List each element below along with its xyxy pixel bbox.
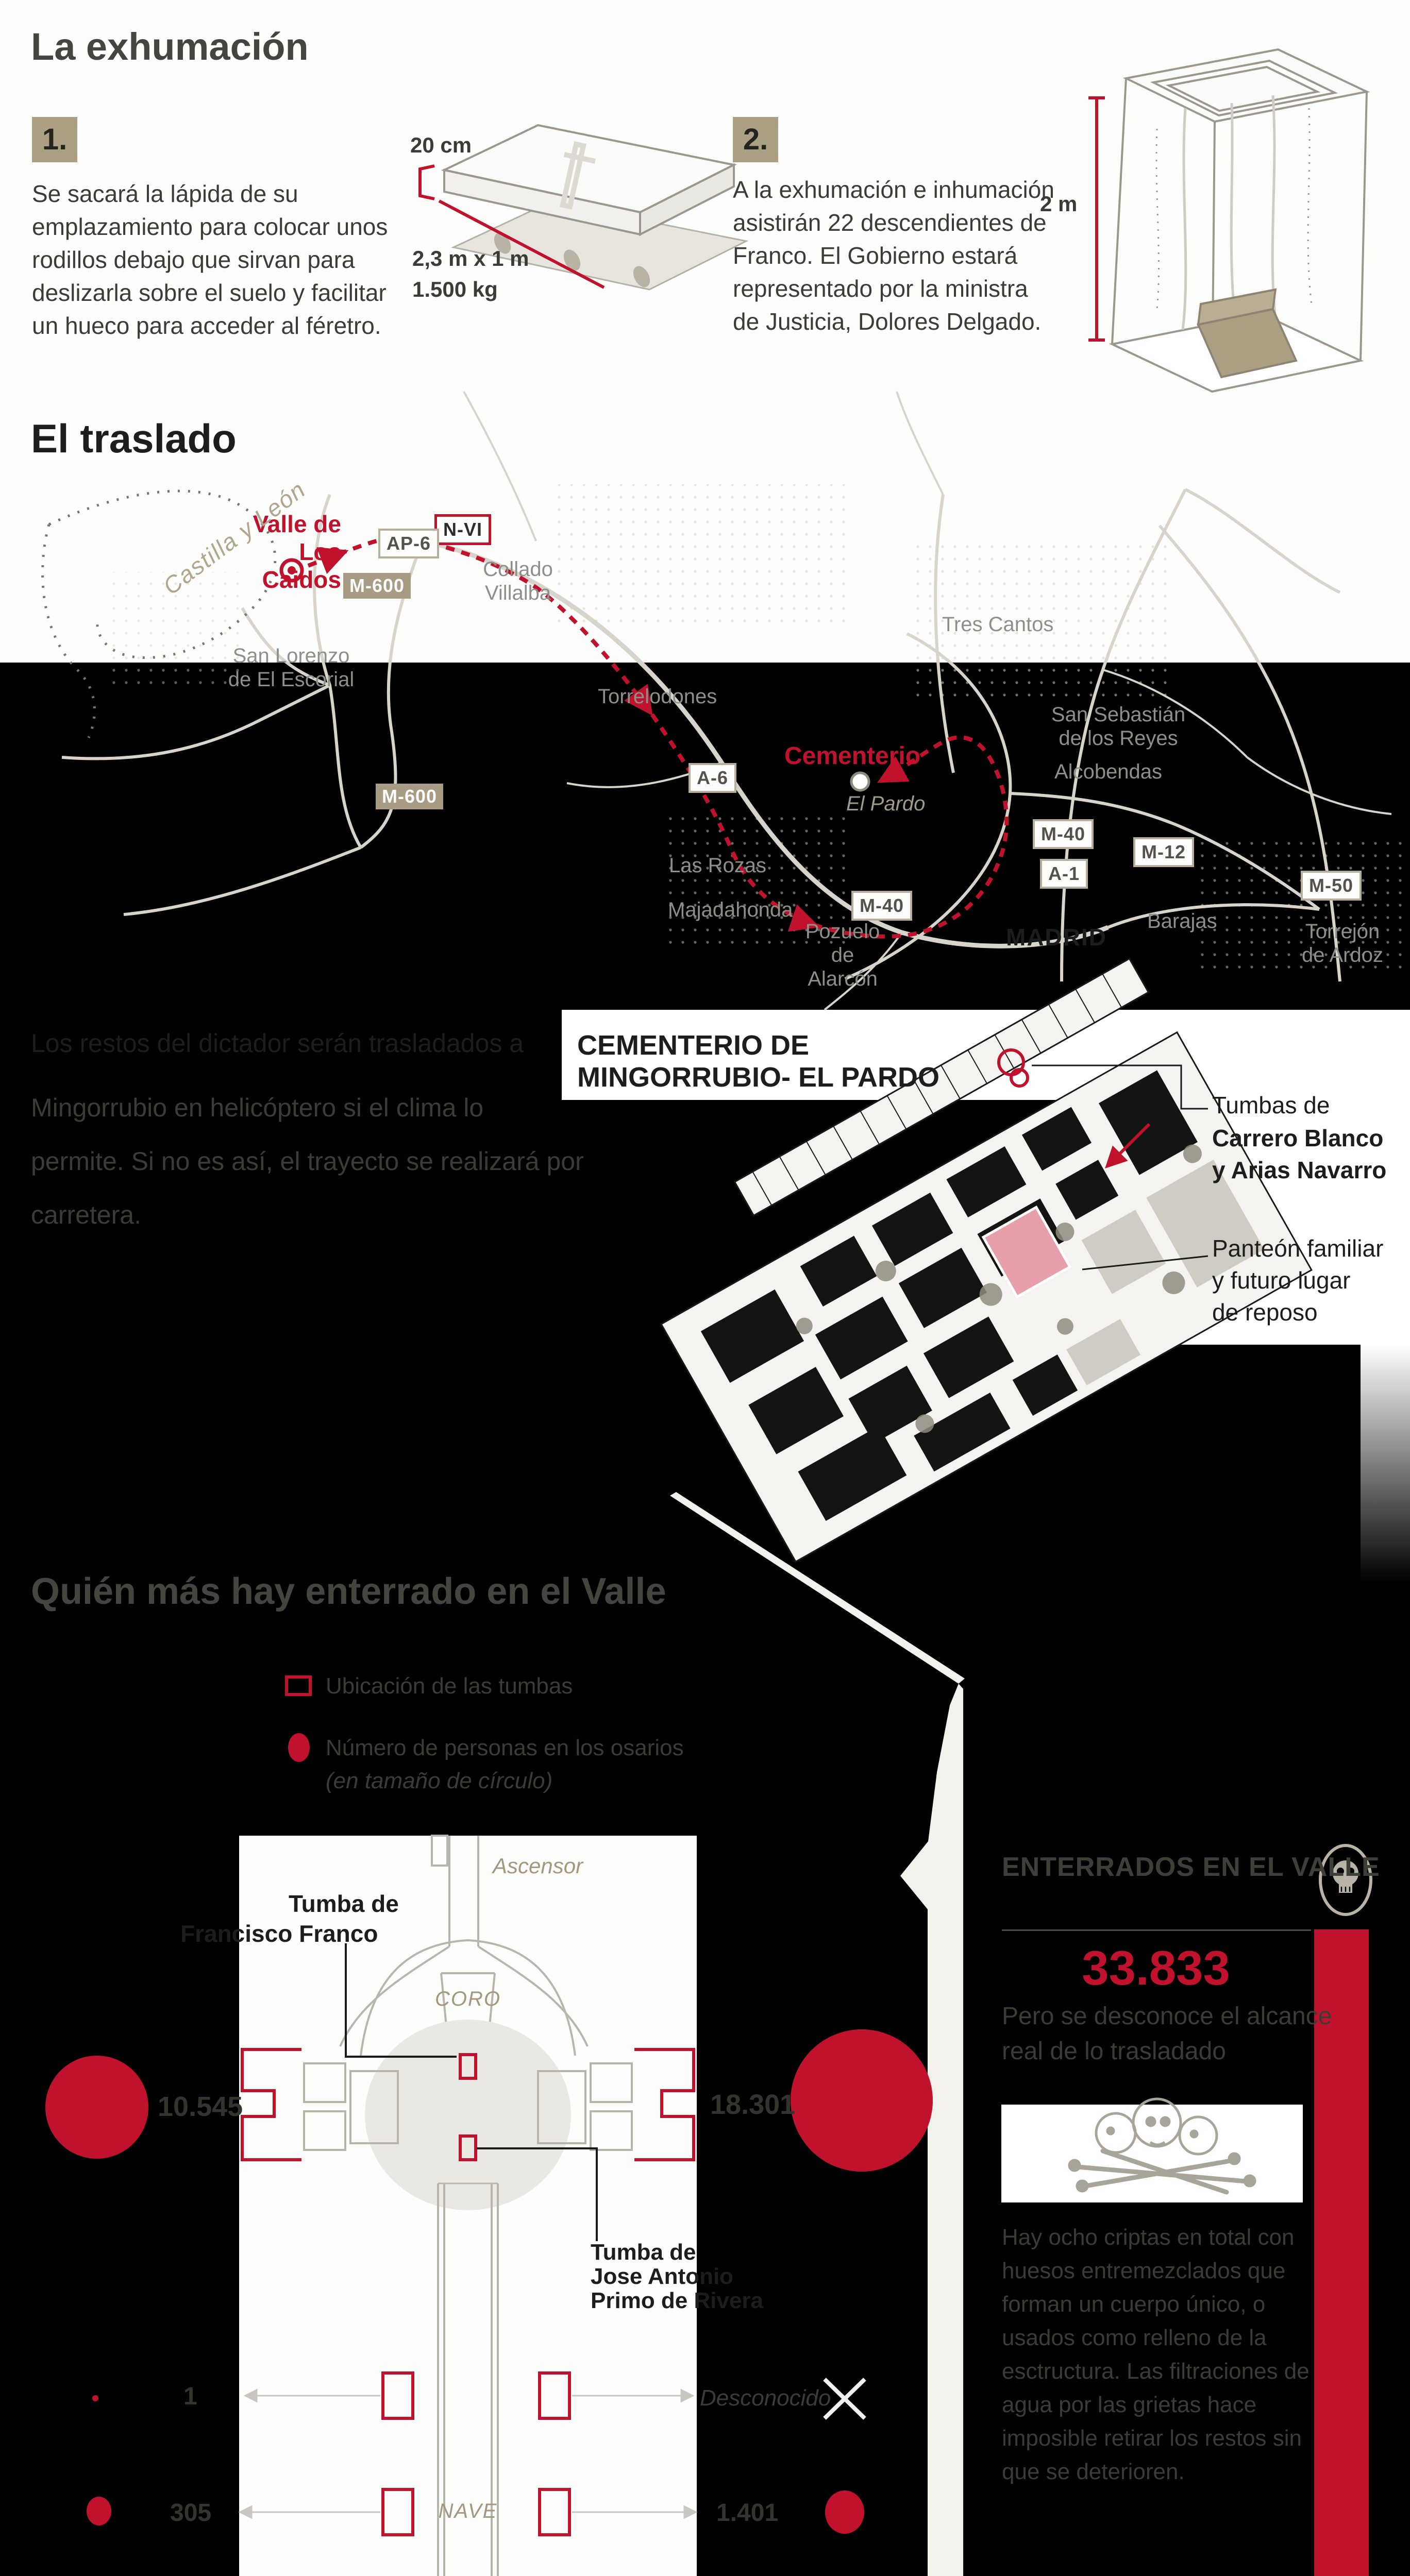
timeline-ribbon [670, 1492, 965, 2576]
town-barajas: Barajas [1147, 910, 1217, 933]
legend-ossuary-note: (en tamaño de círculo) [326, 1768, 552, 1794]
traslado-title: El traslado [31, 415, 237, 462]
vault-illustration [1088, 49, 1367, 392]
road-badge-m40-b: M-40 [851, 891, 912, 921]
franco-tomb-label-line2: Francisco Franco [180, 1920, 378, 1947]
legend-ossuary-icon [288, 1733, 310, 1762]
panel-total-note: Pero se desconoce el alcance real de lo … [1002, 1999, 1332, 2069]
ossuary-right-big-value: 18.301 [710, 2089, 795, 2121]
legend-tomb-icon [287, 1677, 310, 1694]
infographic-canvas: { "accent": "#c1122d", "s1": { "title": … [0, 0, 1410, 2576]
town-pozuelo: Pozuelo de Alarcón [791, 920, 894, 991]
section1-title: La exhumación [31, 25, 309, 69]
cemetery-tombs-label-pre: Tumbas de [1212, 1091, 1330, 1119]
plan-ascensor-label: Ascensor [493, 1854, 583, 1878]
valle-heading: Quién más hay enterrado en el Valle [31, 1570, 666, 1613]
step2-text: A la exhumación e inhumación asistirán 2… [733, 173, 1054, 338]
town-alcobendas: Alcobendas [1054, 760, 1162, 784]
franco-tomb-label-line1: Tumba de [289, 1890, 399, 1918]
crypt-row2-right-value: 1.401 [716, 2499, 778, 2527]
road-badge-a6: A-6 [689, 763, 736, 793]
panel-criptas-note: Hay ocho criptas en total con huesos ent… [1002, 2221, 1310, 2488]
lid-thickness-label: 20 cm [410, 133, 472, 158]
ossuary-left-big-value: 10.545 [158, 2091, 243, 2123]
road-badge-m600-a: M-600 [343, 573, 411, 599]
road-badge-m40-a: M-40 [1033, 819, 1094, 849]
skull-pile-illustration [1069, 2099, 1255, 2192]
town-majadahonda: Majadahonda [668, 899, 793, 922]
panel-title: ENTERRADOS EN EL VALLE [1002, 1852, 1380, 1883]
plan-nave-label: NAVE [427, 2500, 509, 2523]
lid-weight-label: 1.500 kg [412, 277, 498, 302]
step2-number: 2. [733, 117, 778, 162]
cemetery-pantheon-label: Panteón familiar y futuro lugar de repos… [1212, 1232, 1383, 1328]
road-badge-nvi: N-VI [434, 514, 491, 545]
lid-dims-label: 2,3 m x 1 m [412, 246, 529, 271]
cemetery-title: CEMENTERIO DE MINGORRUBIO- EL PARDO [577, 1029, 939, 1093]
cemetery-tombs-label-names: Carrero Blanco y Arias Navarro [1212, 1122, 1386, 1186]
town-torrelodones: Torrelodones [598, 685, 717, 708]
map-destination-label: Cementerio [784, 742, 920, 770]
crypt-arrows [241, 2396, 695, 2576]
town-collado: Collado Villalba [464, 557, 572, 605]
plan-coro-label: CORO [427, 1988, 509, 2011]
crypt-row2-left-value: 305 [170, 2499, 211, 2527]
map-madrid-label: MADRID [1006, 923, 1107, 951]
traslado-note-rest: Mingorrubio en helicóptero si el clima l… [31, 1081, 584, 1242]
town-sanlorenzo: San Lorenzo de El Escorial [216, 644, 366, 691]
step1-text: Se sacará la lápida de su emplazamiento … [32, 177, 388, 342]
panel-total-value: 33.833 [1001, 1940, 1311, 1996]
road-badge-m600-b: M-600 [376, 784, 443, 809]
road-badge-a1: A-1 [1040, 859, 1088, 889]
town-trescantos: Tres Cantos [942, 613, 1053, 636]
road-badge-m50: M-50 [1301, 871, 1362, 901]
town-torrejon: Torrejón de Ardoz [1294, 920, 1391, 967]
legend-tombs-label: Ubicación de las tumbas [326, 1673, 573, 1699]
step1-number: 1. [32, 117, 77, 162]
town-sansebastian: San Sebastián de los Reyes [1049, 703, 1188, 750]
vault-depth-label: 2 m [1040, 192, 1077, 216]
legend-ossuary-label: Número de personas en los osarios [326, 1735, 684, 1761]
traslado-note-line1: Los restos del dictador serán trasladado… [31, 1028, 524, 1058]
road-badge-ap6: AP-6 [378, 529, 439, 558]
crypt-row1-left-value: 1 [183, 2382, 197, 2411]
road-badge-m12: M-12 [1133, 837, 1194, 867]
artwork-layer: ? [0, 0, 1410, 2576]
map-elpardo-label: El Pardo [846, 792, 925, 816]
crypt-row1-right-label: Desconocido [700, 2385, 831, 2411]
jose-tomb-label: Tumba de Jose Antonio Primo de Rivera [591, 2240, 763, 2313]
town-lasrozas: Las Rozas [669, 854, 766, 877]
